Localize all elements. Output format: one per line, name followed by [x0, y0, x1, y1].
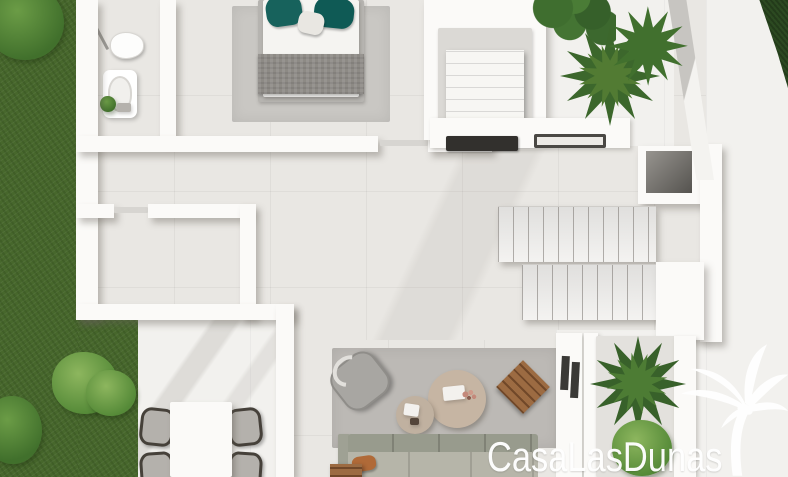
planter-bush [612, 420, 672, 476]
wall-room-right [240, 204, 256, 318]
wall-hallway-top [76, 136, 378, 152]
bathroom-plant [100, 96, 116, 112]
dining-chair-4 [227, 451, 264, 477]
wall-left-outer [76, 0, 98, 320]
wall-window-slits [556, 333, 582, 477]
kitchen-sink [534, 134, 606, 148]
stair-flight-lower [522, 264, 662, 320]
room-door [114, 207, 148, 213]
stair-wall-inner [656, 262, 704, 340]
dining-table [170, 402, 232, 477]
table-dried-flowers [460, 388, 478, 404]
wall-bathroom-right [160, 0, 176, 141]
wall-room-bottom [76, 304, 294, 320]
plant-roundleaf [532, 0, 616, 50]
sofa-seat-cushions [348, 452, 538, 477]
table-dark-item [410, 418, 419, 425]
bed-blanket [258, 54, 364, 94]
bush-garden-3 [86, 370, 136, 416]
wall-room-top-a [76, 204, 114, 218]
cooktop [446, 136, 518, 151]
bathroom-tray [117, 103, 131, 112]
sofa-side-wood [330, 464, 362, 477]
closet-linens [446, 50, 524, 124]
stair-flight-upper [498, 206, 656, 262]
toilet [110, 32, 144, 59]
wall-room-top-b [148, 204, 250, 218]
bedroom-door [380, 140, 428, 146]
floorplan-canvas: CasaLasDunas [0, 0, 788, 477]
wall-terrace-divider [276, 304, 294, 477]
stair-landing-void [646, 151, 692, 193]
table-napkin [403, 403, 420, 417]
